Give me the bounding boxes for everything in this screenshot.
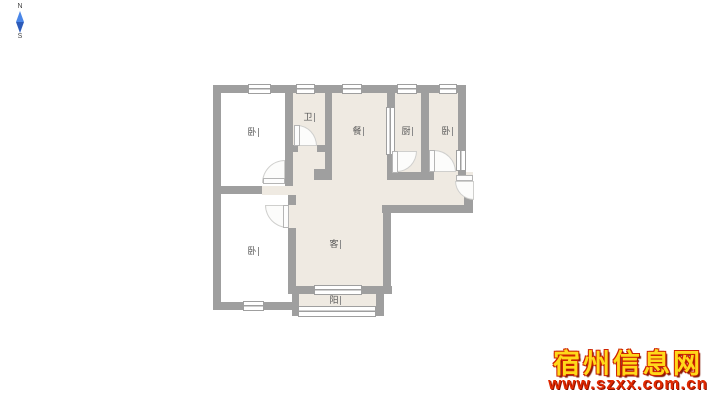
label-bedroom-top-left: 卧 [245,127,261,137]
window-bedroom3-top [439,84,457,94]
door-panel-bedroom3 [429,150,435,172]
door-panel-bedroom1 [263,178,285,184]
wall-bedroom2-right-b [288,228,296,294]
wall-bathroom-bottom-a [293,145,298,152]
wall-bedrooms-divider [213,186,262,194]
watermark: 宿州信息网 www.szxx.com.cn [542,351,714,395]
label-bathroom: 卫 [301,112,317,122]
window-dining-top [342,84,362,94]
window-balcony-bottom [298,306,376,317]
wall-outer-left [213,85,221,310]
wall-nook-stub [314,169,325,180]
wall-bedroom1-right [285,93,293,186]
window-dining-kitchen [386,107,395,155]
label-dining-room: 餐 [350,126,366,136]
door-panel-bathroom [294,125,300,146]
label-kitchen: 厨 [399,126,415,136]
window-bedroom2-bottom [243,301,264,311]
wall-kitchen-bottom [387,172,434,180]
window-bedroom1-top [248,84,271,94]
label-balcony: 阳 [327,295,343,305]
door-panel-entry [456,175,473,181]
window-bedroom3-right [456,150,466,171]
floor-plan: 卧 卫 餐 厨 卧 客 卧 阳 [0,0,720,405]
door-panel-bedroom2 [283,205,289,228]
wall-bathroom-bottom-b [317,145,332,152]
window-bathroom-top [296,84,315,94]
wall-living-right [383,205,391,287]
door-panel-kitchen [392,151,398,173]
wall-kitchen-right [421,93,429,180]
watermark-site-url: www.szxx.com.cn [542,375,714,393]
floor-living [288,180,390,294]
window-living-balcony [314,285,362,295]
window-kitchen-top [397,84,417,94]
wall-bathroom-right [325,93,332,180]
wall-bedroom2-right-a [288,195,296,205]
wall-corridor-bottom [382,205,473,213]
label-bedroom-top-right: 卧 [439,126,455,136]
label-bedroom-bottom-left: 卧 [245,246,261,256]
label-living-room: 客 [327,239,343,249]
